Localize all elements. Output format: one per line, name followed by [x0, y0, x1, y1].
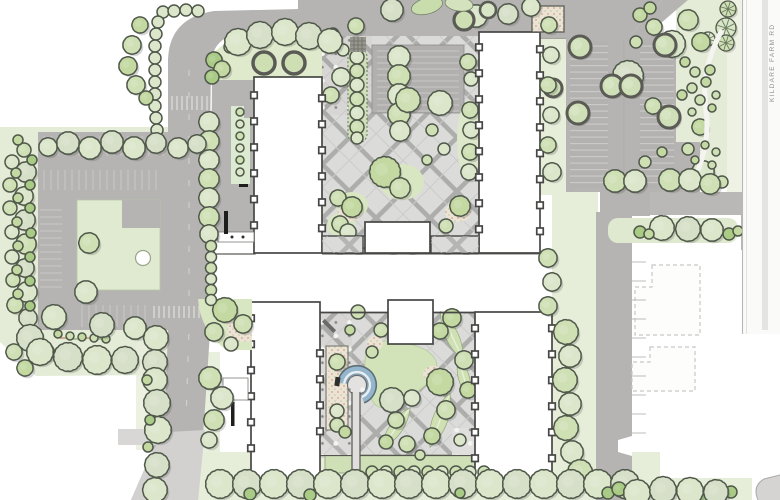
svg-text:KILDARE FARM RD: KILDARE FARM RD	[769, 24, 776, 102]
